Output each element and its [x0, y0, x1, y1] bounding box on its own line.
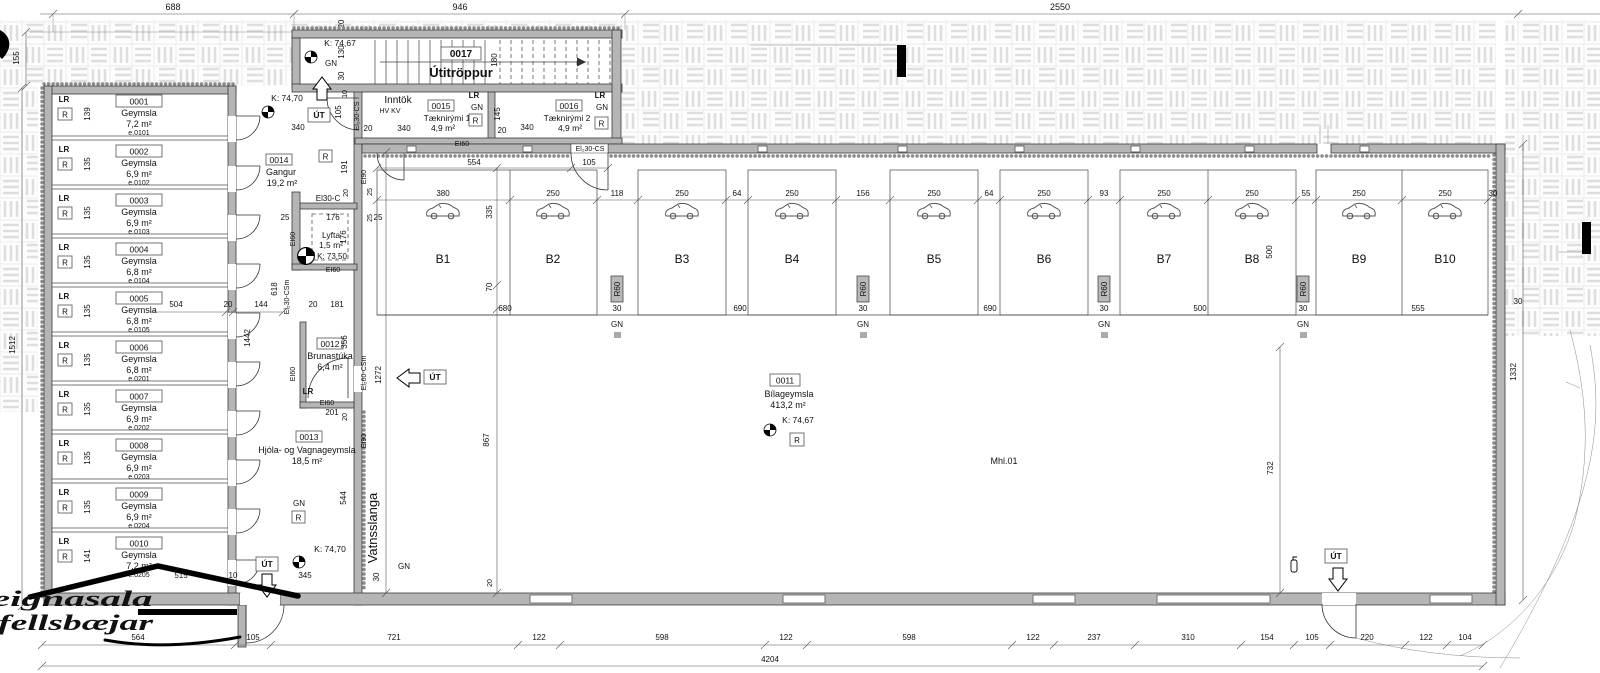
svg-text:544: 544 [339, 491, 348, 505]
svg-text:180: 180 [490, 53, 499, 67]
svg-text:145: 145 [493, 107, 502, 121]
svg-text:El₂30-CS: El₂30-CS [576, 146, 605, 153]
svg-text:345: 345 [298, 571, 312, 580]
svg-text:250: 250 [1438, 189, 1452, 198]
svg-text:20: 20 [343, 189, 350, 197]
svg-text:122: 122 [1419, 633, 1433, 642]
svg-text:0005: 0005 [130, 294, 149, 304]
car-icons [427, 203, 1462, 218]
svg-text:EI90: EI90 [361, 170, 368, 185]
svg-text:64: 64 [985, 189, 994, 198]
svg-text:30: 30 [372, 572, 381, 581]
svg-text:30: 30 [337, 71, 346, 80]
room-0006: LRR1350006Geymsla6,8 m²e.0201 [58, 341, 162, 383]
svg-text:154: 154 [1260, 633, 1274, 642]
svg-text:LR: LR [59, 488, 70, 497]
svg-text:Brunastúka: Brunastúka [307, 351, 353, 361]
level-marker [262, 106, 274, 118]
room-0013-hjola: 0013 Hjóla- og Vagnageymsla 18,5 m² GN R… [174, 431, 355, 597]
svg-text:El₂30-CS: El₂30-CS [354, 101, 361, 130]
svg-text:EI60: EI60 [455, 141, 470, 148]
svg-text:30: 30 [859, 304, 868, 313]
svg-text:340: 340 [291, 123, 305, 132]
svg-text:30: 30 [1100, 304, 1109, 313]
svg-text:30: 30 [613, 304, 622, 313]
svg-text:R60: R60 [859, 281, 868, 296]
svg-text:201: 201 [325, 408, 339, 417]
logo-underline [105, 637, 240, 645]
svg-text:135: 135 [83, 500, 92, 514]
svg-text:LR: LR [59, 95, 70, 104]
svg-text:30: 30 [1489, 189, 1498, 198]
svg-text:156: 156 [856, 189, 870, 198]
svg-text:30: 30 [1514, 297, 1523, 306]
svg-text:LR: LR [59, 292, 70, 301]
site-marker [897, 45, 906, 77]
svg-text:0002: 0002 [130, 147, 149, 157]
svg-text:Geymsla: Geymsla [121, 403, 157, 413]
svg-text:6,8 m²: 6,8 m² [126, 316, 152, 326]
svg-text:4,9 m²: 4,9 m² [558, 123, 582, 133]
svg-text:B8: B8 [1245, 252, 1260, 266]
svg-text:LR: LR [59, 194, 70, 203]
svg-text:ÚT: ÚT [429, 371, 441, 382]
svg-text:R60: R60 [1299, 281, 1308, 296]
svg-text:93: 93 [1100, 189, 1109, 198]
svg-text:R: R [62, 406, 68, 415]
svg-text:R: R [62, 111, 68, 120]
svg-text:500: 500 [1265, 245, 1274, 259]
svg-text:105: 105 [582, 158, 596, 167]
svg-text:6,8 m²: 6,8 m² [126, 365, 152, 375]
svg-text:0014: 0014 [270, 155, 289, 165]
svg-text:598: 598 [902, 633, 916, 642]
svg-text:0015: 0015 [432, 101, 451, 111]
level-marker [764, 424, 776, 436]
svg-text:135: 135 [83, 206, 92, 220]
svg-text:70: 70 [485, 282, 494, 291]
svg-text:e.0201: e.0201 [128, 376, 150, 383]
svg-text:6,9 m²: 6,9 m² [126, 463, 152, 473]
svg-text:191: 191 [340, 160, 349, 174]
svg-text:20: 20 [309, 300, 318, 309]
svg-text:380: 380 [436, 189, 450, 198]
svg-text:B3: B3 [675, 252, 690, 266]
svg-text:GN: GN [611, 320, 623, 329]
svg-text:141: 141 [83, 549, 92, 563]
svg-text:250: 250 [1037, 189, 1051, 198]
svg-text:118: 118 [611, 189, 624, 198]
svg-text:R: R [62, 259, 68, 268]
svg-text:250: 250 [927, 189, 941, 198]
svg-text:250: 250 [1245, 189, 1259, 198]
svg-text:30: 30 [1299, 304, 1308, 313]
svg-text:690: 690 [733, 304, 747, 313]
room-0009: LRR1350009Geymsla6,9 m²e.0204 [58, 488, 162, 530]
svg-text:B2: B2 [546, 252, 561, 266]
svg-text:R: R [794, 436, 800, 445]
room-0001: LRR1390001Geymsla7,2 m²e.0101 [58, 95, 162, 137]
svg-text:Geymsla: Geymsla [121, 550, 157, 560]
svg-text:B7: B7 [1157, 252, 1172, 266]
svg-text:1442: 1442 [243, 329, 252, 347]
ut-up-arrow-icon [313, 77, 331, 100]
svg-text:135: 135 [83, 353, 92, 367]
svg-text:104: 104 [1458, 633, 1472, 642]
svg-text:Geymsla: Geymsla [121, 108, 157, 118]
svg-text:R: R [62, 210, 68, 219]
svg-text:500: 500 [1193, 304, 1207, 313]
svg-text:LR: LR [469, 91, 480, 100]
svg-text:GN: GN [1098, 320, 1110, 329]
svg-text:Mhl.01: Mhl.01 [990, 456, 1017, 466]
svg-text:K: 74,67: K: 74,67 [782, 415, 814, 425]
svg-text:Geymsla: Geymsla [121, 207, 157, 217]
svg-text:e.0202: e.0202 [128, 425, 150, 432]
svg-text:122: 122 [779, 633, 793, 642]
svg-text:139: 139 [83, 107, 92, 121]
svg-text:0007: 0007 [130, 392, 149, 402]
room-0008: LRR1350008Geymsla6,9 m²e.0203 [58, 439, 162, 481]
svg-text:335: 335 [485, 205, 494, 219]
svg-text:e.0105: e.0105 [128, 327, 150, 334]
svg-text:105: 105 [246, 633, 260, 642]
svg-text:20: 20 [224, 300, 233, 309]
svg-text:R: R [62, 161, 68, 170]
svg-text:135: 135 [83, 255, 92, 269]
svg-text:Geymsla: Geymsla [121, 452, 157, 462]
svg-text:130: 130 [337, 45, 346, 59]
svg-text:e.0204: e.0204 [128, 523, 150, 530]
svg-text:690: 690 [983, 304, 997, 313]
svg-text:20: 20 [342, 413, 349, 421]
ut-down-arrow-icon [1329, 568, 1347, 591]
svg-text:K: 73,50: K: 73,50 [317, 252, 347, 261]
svg-text:Inntök: Inntök [384, 95, 412, 106]
dimension-lines-bottom: 564105 721122 598122 598122 237310 15410… [38, 330, 1596, 670]
svg-text:Geymsla: Geymsla [121, 354, 157, 364]
svg-text:R: R [599, 120, 605, 129]
svg-text:10: 10 [342, 90, 349, 98]
svg-text:B1: B1 [436, 252, 451, 266]
svg-text:135: 135 [83, 304, 92, 318]
svg-text:867: 867 [482, 433, 491, 447]
svg-text:e.0104: e.0104 [128, 278, 150, 285]
svg-text:1272: 1272 [374, 366, 383, 384]
svg-text:K: 74,70: K: 74,70 [271, 93, 303, 103]
svg-text:Lyfta: Lyfta [322, 230, 340, 240]
svg-text:618: 618 [270, 282, 279, 296]
svg-text:122: 122 [532, 633, 546, 642]
svg-text:R: R [62, 308, 68, 317]
room-0002: LRR1350002Geymsla6,9 m²e.0102 [58, 145, 162, 187]
room-0007: LRR1350007Geymsla6,9 m²e.0202 [58, 390, 162, 432]
room-0003: LRR1350003Geymsla6,9 m²e.0103 [58, 194, 162, 236]
svg-text:250: 250 [1352, 189, 1366, 198]
svg-text:R: R [62, 504, 68, 513]
svg-text:EI90: EI90 [361, 434, 368, 449]
svg-text:181: 181 [330, 300, 344, 309]
svg-text:144: 144 [254, 300, 268, 309]
svg-text:2550: 2550 [1050, 2, 1070, 12]
svg-text:7,2 m²: 7,2 m² [126, 119, 152, 129]
svg-text:598: 598 [655, 633, 669, 642]
svg-text:GN: GN [596, 103, 608, 112]
svg-text:6,4 m²: 6,4 m² [317, 362, 343, 372]
svg-text:0012: 0012 [321, 339, 340, 349]
svg-text:732: 732 [1266, 461, 1275, 475]
svg-text:LR: LR [59, 439, 70, 448]
svg-text:0008: 0008 [130, 441, 149, 451]
svg-text:0004: 0004 [130, 245, 149, 255]
svg-text:e.0102: e.0102 [128, 180, 150, 187]
fire-extinguisher-icon [1291, 557, 1297, 572]
level-marker [293, 556, 305, 568]
svg-text:Tæknirými 1: Tæknirými 1 [424, 113, 471, 123]
svg-text:105: 105 [334, 105, 343, 119]
svg-text:20: 20 [364, 124, 373, 133]
svg-text:25: 25 [367, 188, 374, 196]
svg-text:135: 135 [83, 451, 92, 465]
svg-text:GN: GN [293, 499, 305, 508]
svg-text:0017: 0017 [450, 49, 473, 60]
svg-text:ÚT: ÚT [261, 558, 273, 569]
svg-text:Vatnsslanga: Vatnsslanga [365, 492, 380, 563]
room-0011-bilageymsla: 554 105 380250 118250 64250 156250 64250… [365, 146, 1498, 597]
svg-text:LR: LR [595, 91, 606, 100]
svg-text:EI60: EI60 [326, 267, 341, 274]
svg-text:20: 20 [498, 126, 507, 135]
svg-text:El₂60-CSm: El₂60-CSm [361, 356, 368, 391]
svg-text:0010: 0010 [130, 539, 149, 549]
svg-text:55: 55 [1302, 189, 1311, 198]
svg-text:0013: 0013 [300, 432, 319, 442]
ut-left-arrow-icon [397, 369, 420, 387]
svg-text:19,2 m²: 19,2 m² [267, 178, 298, 188]
svg-text:4,9 m²: 4,9 m² [431, 123, 455, 133]
svg-text:Mosfellsbæjar: Mosfellsbæjar [0, 610, 154, 635]
svg-text:340: 340 [520, 123, 534, 132]
svg-text:R: R [62, 455, 68, 464]
svg-text:Útitröppur: Útitröppur [429, 65, 493, 80]
svg-text:Geymsla: Geymsla [121, 256, 157, 266]
svg-text:R: R [296, 514, 302, 523]
svg-text:GN: GN [471, 103, 483, 112]
svg-text:EI60: EI60 [290, 232, 297, 247]
svg-text:Geymsla: Geymsla [121, 501, 157, 511]
svg-text:ÚT: ÚT [313, 109, 325, 120]
svg-text:356: 356 [340, 335, 349, 349]
svg-text:B9: B9 [1352, 252, 1367, 266]
svg-text:HV KV: HV KV [379, 108, 400, 115]
svg-text:R: R [62, 553, 68, 562]
svg-text:0001: 0001 [130, 97, 149, 107]
floor-plan-drawing: 688 946 2550 20 155 1512 1332 30 [0, 0, 1600, 673]
svg-text:0011: 0011 [776, 376, 795, 386]
svg-text:LR: LR [59, 341, 70, 350]
svg-text:Geymsla: Geymsla [121, 305, 157, 315]
svg-text:25: 25 [281, 213, 290, 222]
svg-text:e.0101: e.0101 [128, 130, 150, 137]
svg-text:688: 688 [165, 2, 180, 12]
svg-text:R: R [323, 153, 329, 162]
level-marker [298, 248, 315, 265]
svg-text:1332: 1332 [1509, 363, 1518, 381]
svg-text:155: 155 [12, 51, 21, 65]
svg-text:Fasteignasala: Fasteignasala [0, 586, 153, 611]
svg-text:554: 554 [467, 158, 481, 167]
svg-text:LR: LR [59, 243, 70, 252]
svg-text:250: 250 [1157, 189, 1171, 198]
svg-text:6,9 m²: 6,9 m² [126, 169, 152, 179]
svg-text:e.0203: e.0203 [128, 474, 150, 481]
svg-text:176: 176 [326, 213, 340, 222]
svg-text:B5: B5 [927, 252, 942, 266]
stall-labels: B1B2 B3B4 B5B6 B7B8 B9B10 [436, 252, 1456, 266]
svg-text:250: 250 [546, 189, 560, 198]
svg-text:122: 122 [1026, 633, 1040, 642]
svg-text:25: 25 [367, 214, 374, 222]
svg-text:20: 20 [487, 579, 494, 587]
svg-text:310: 310 [1181, 633, 1195, 642]
svg-text:105: 105 [1305, 633, 1319, 642]
svg-text:R: R [473, 117, 479, 126]
svg-text:Gangur: Gangur [266, 167, 296, 177]
svg-text:413,2 m²: 413,2 m² [770, 400, 806, 410]
svg-text:R60: R60 [613, 281, 622, 296]
svg-text:946: 946 [452, 2, 467, 12]
room-0004: LRR1350004Geymsla6,8 m²e.0104 [58, 243, 162, 285]
svg-text:LR: LR [59, 537, 70, 546]
svg-text:GN: GN [857, 320, 869, 329]
svg-text:6,9 m²: 6,9 m² [126, 512, 152, 522]
svg-text:250: 250 [675, 189, 689, 198]
level-marker [305, 51, 317, 63]
svg-text:B6: B6 [1037, 252, 1052, 266]
svg-text:B10: B10 [1434, 252, 1456, 266]
room-0005: LRR1350005Geymsla6,8 m²e.0105 [58, 292, 162, 334]
svg-text:6,8 m²: 6,8 m² [126, 267, 152, 277]
svg-text:1512: 1512 [8, 336, 17, 354]
svg-text:6,9 m²: 6,9 m² [126, 218, 152, 228]
svg-text:Bílageymsla: Bílageymsla [764, 389, 813, 399]
svg-text:18,5 m²: 18,5 m² [292, 456, 323, 466]
svg-text:25: 25 [374, 213, 383, 222]
svg-text:Geymsla: Geymsla [121, 158, 157, 168]
svg-text:250: 250 [785, 189, 799, 198]
svg-text:237: 237 [1087, 633, 1101, 642]
svg-text:K: 74,70: K: 74,70 [314, 544, 346, 554]
svg-text:EI60: EI60 [290, 367, 297, 382]
svg-text:R60: R60 [1100, 281, 1109, 296]
svg-text:El30-C: El30-C [316, 194, 341, 203]
svg-text:504: 504 [169, 300, 183, 309]
svg-text:LR: LR [59, 390, 70, 399]
svg-text:GN: GN [325, 59, 337, 68]
svg-text:0006: 0006 [130, 343, 149, 353]
svg-text:R: R [62, 357, 68, 366]
svg-text:ÚT: ÚT [1330, 550, 1342, 561]
svg-text:LR: LR [303, 387, 314, 396]
svg-text:340: 340 [397, 124, 411, 133]
site-marker [1582, 222, 1591, 254]
svg-text:135: 135 [83, 157, 92, 171]
svg-text:B4: B4 [785, 252, 800, 266]
svg-text:135: 135 [83, 402, 92, 416]
svg-text:0003: 0003 [130, 196, 149, 206]
room-0010: LRR1410010Geymsla7,2 m²e.0205 [58, 537, 162, 579]
svg-text:220: 220 [1360, 633, 1374, 642]
svg-text:0009: 0009 [130, 490, 149, 500]
svg-text:0016: 0016 [560, 101, 579, 111]
svg-text:GN: GN [1297, 320, 1309, 329]
stall-dims: 380250 118250 64250 156250 64250 93250 2… [367, 188, 1498, 222]
svg-text:GN: GN [398, 562, 410, 571]
svg-text:Tæknirými 2: Tæknirými 2 [544, 113, 591, 123]
svg-text:EI60: EI60 [320, 400, 335, 407]
svg-text:Hjóla- og Vagnageymsla: Hjóla- og Vagnageymsla [258, 445, 355, 455]
svg-text:4204: 4204 [761, 655, 779, 664]
svg-text:LR: LR [59, 145, 70, 154]
svg-text:176: 176 [339, 230, 348, 244]
svg-text:6,9 m²: 6,9 m² [126, 414, 152, 424]
svg-text:721: 721 [387, 633, 401, 642]
svg-text:e.0103: e.0103 [128, 229, 150, 236]
svg-text:64: 64 [733, 189, 742, 198]
svg-text:555: 555 [1411, 304, 1425, 313]
svg-text:El₂30-CSm: El₂30-CSm [284, 280, 291, 315]
floor-plan: 688 946 2550 20 155 1512 1332 30 [0, 0, 1600, 673]
